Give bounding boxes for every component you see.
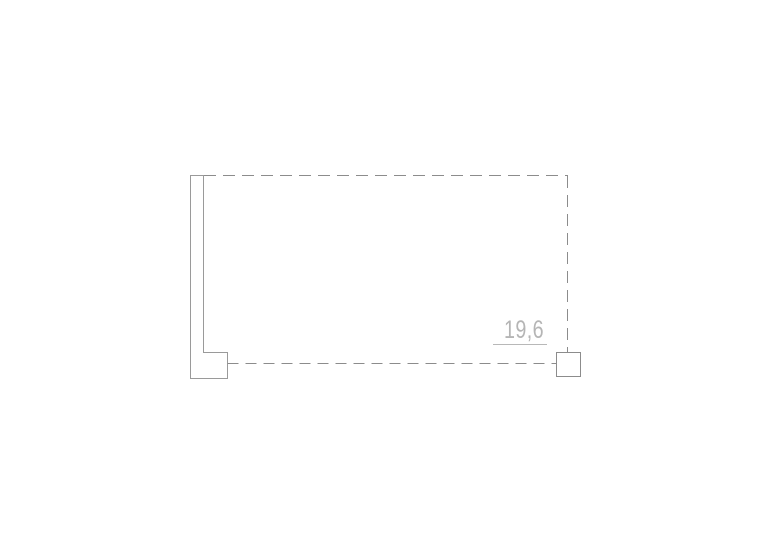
- dimension-label: 19,6: [504, 316, 544, 344]
- plan-drawing: 19,6: [0, 0, 768, 543]
- wall-corner-outline: [191, 176, 228, 379]
- column-marker: [557, 353, 581, 377]
- drawing-canvas: 19,6: [0, 0, 768, 543]
